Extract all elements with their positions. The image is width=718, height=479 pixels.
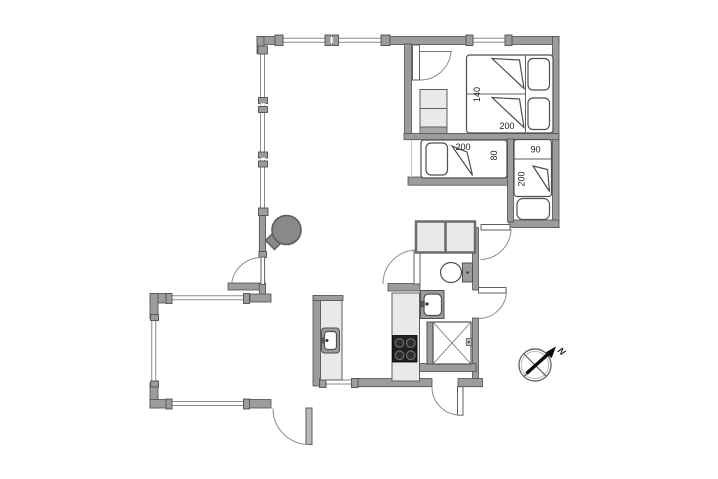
double-bed-width-label: 140: [472, 87, 482, 102]
door-leaf: [458, 387, 464, 416]
double-bed-length-label: 200: [499, 121, 514, 131]
alcove-bed-length-label: 200: [455, 142, 470, 152]
door-leaf: [414, 250, 420, 284]
pillow: [528, 98, 550, 130]
door-leaf: [479, 288, 507, 294]
pillow: [426, 143, 448, 175]
door-leaf: [413, 45, 420, 80]
window-icon: [471, 38, 507, 42]
window-icon: [152, 319, 156, 384]
floorplan-drawing: N 140 200 200 80 90 200: [0, 0, 718, 479]
kitchen-sink-icon: [321, 328, 340, 353]
shower-icon: [427, 322, 472, 364]
annex-bed-length-label: 200: [517, 171, 527, 186]
door-leaf: [481, 225, 510, 231]
window-icon: [261, 54, 265, 215]
wardrobe-shelf: [420, 127, 447, 134]
window-icon: [171, 402, 246, 406]
washbasin-icon: [421, 291, 445, 319]
background: [0, 0, 718, 479]
bench-icon: [517, 199, 550, 220]
door-leaf: [261, 257, 265, 285]
pillow: [528, 59, 550, 91]
alcove-bed-width-label: 80: [489, 150, 499, 160]
toilet-icon: [441, 263, 473, 283]
annex-bed-width-label: 90: [530, 145, 540, 155]
window-icon: [325, 380, 353, 384]
floorplan-canvas: N 140 200 200 80 90 200: [0, 0, 718, 479]
door-leaf: [306, 408, 312, 445]
cooktop-icon: [393, 336, 418, 363]
window-icon: [171, 296, 246, 300]
